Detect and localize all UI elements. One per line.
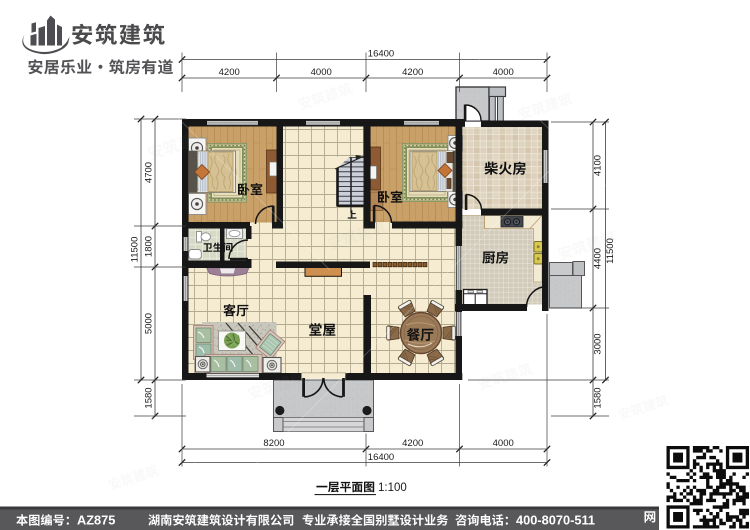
svg-text:11500: 11500 (130, 237, 141, 263)
svg-text:4200: 4200 (219, 67, 240, 78)
svg-text:400-8070-511: 400-8070-511 (516, 512, 595, 527)
svg-text:1580: 1580 (144, 387, 155, 408)
svg-text:5000: 5000 (144, 313, 155, 334)
svg-text:3000: 3000 (593, 333, 604, 354)
svg-text:1:100: 1:100 (378, 482, 407, 494)
svg-text:16400: 16400 (368, 452, 394, 463)
svg-text:1800: 1800 (144, 236, 155, 257)
svg-text:AZ875: AZ875 (77, 512, 115, 527)
svg-text:4400: 4400 (593, 248, 604, 269)
svg-text:4000: 4000 (493, 438, 514, 449)
svg-text:4200: 4200 (402, 67, 423, 78)
svg-text:1580: 1580 (593, 387, 604, 408)
svg-text:4000: 4000 (311, 67, 332, 78)
svg-text:16400: 16400 (368, 49, 394, 60)
svg-text:4700: 4700 (144, 162, 155, 183)
svg-text:8200: 8200 (263, 438, 284, 449)
svg-text:4000: 4000 (493, 67, 514, 78)
svg-text:4200: 4200 (402, 438, 423, 449)
svg-text:4100: 4100 (593, 155, 604, 176)
